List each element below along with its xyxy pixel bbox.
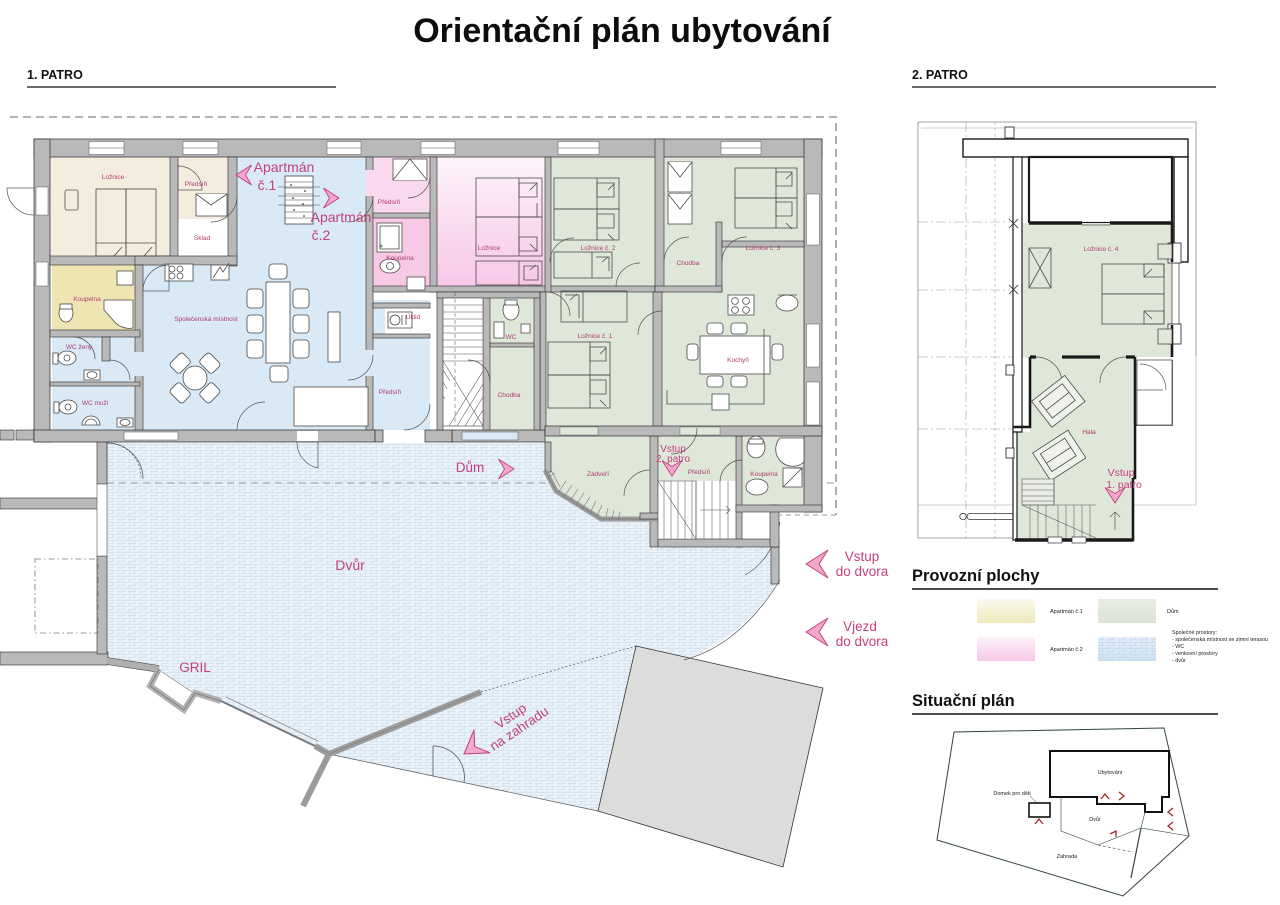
svg-text:Koupelna: Koupelna bbox=[386, 255, 414, 262]
svg-text:Apartmán: Apartmán bbox=[254, 159, 315, 175]
svg-text:Společenská místnost: Společenská místnost bbox=[174, 316, 238, 323]
svg-text:Společné prostory:: Společné prostory: bbox=[1172, 630, 1217, 636]
svg-text:Ubytování: Ubytování bbox=[1098, 770, 1123, 776]
svg-text:Kuchyň: Kuchyň bbox=[727, 357, 749, 364]
svg-text:č.1: č.1 bbox=[258, 177, 277, 193]
svg-text:Domek pro děti: Domek pro děti bbox=[993, 791, 1030, 797]
svg-text:Koupelna: Koupelna bbox=[750, 471, 778, 478]
svg-text:Ložnice: Ložnice bbox=[102, 174, 125, 181]
svg-text:Sklad: Sklad bbox=[194, 235, 211, 242]
svg-text:- společenská místnost se zimn: - společenská místnost se zimní terasou bbox=[1172, 637, 1268, 643]
svg-text:do dvora: do dvora bbox=[836, 634, 889, 649]
svg-text:do dvora: do dvora bbox=[836, 564, 889, 579]
svg-text:č.2: č.2 bbox=[312, 227, 331, 243]
svg-text:Dům: Dům bbox=[1167, 608, 1179, 615]
svg-text:Apartmán č.1: Apartmán č.1 bbox=[1050, 609, 1083, 615]
svg-text:Vstup: Vstup bbox=[845, 549, 880, 564]
svg-text:Ložnice: Ložnice bbox=[478, 245, 501, 252]
svg-text:2. PATRO: 2. PATRO bbox=[912, 68, 968, 82]
svg-text:Hala: Hala bbox=[1082, 429, 1096, 436]
svg-text:Vstup: Vstup bbox=[1108, 467, 1135, 479]
svg-text:Chodba: Chodba bbox=[498, 392, 521, 399]
svg-text:Vjezd: Vjezd bbox=[843, 619, 877, 634]
svg-text:Ložnice č. 4: Ložnice č. 4 bbox=[1084, 246, 1119, 253]
svg-text:Dvůr: Dvůr bbox=[335, 557, 365, 573]
svg-text:Zádveří: Zádveří bbox=[587, 471, 609, 478]
svg-text:WC ženy: WC ženy bbox=[66, 344, 93, 351]
svg-text:WC muži: WC muži bbox=[82, 400, 108, 407]
svg-text:Dvůr: Dvůr bbox=[1089, 816, 1101, 823]
svg-text:1. PATRO: 1. PATRO bbox=[27, 68, 83, 82]
svg-text:Zahrada: Zahrada bbox=[1057, 854, 1078, 860]
svg-text:Ložnice č. 3: Ložnice č. 3 bbox=[746, 245, 781, 252]
svg-text:GRIL: GRIL bbox=[179, 660, 211, 675]
svg-text:Úklid: Úklid bbox=[406, 312, 421, 321]
svg-text:Koupelna: Koupelna bbox=[73, 296, 101, 303]
svg-text:Předsíň: Předsíň bbox=[378, 199, 401, 206]
svg-text:Dům: Dům bbox=[456, 460, 485, 475]
svg-text:Předsíň: Předsíň bbox=[185, 181, 208, 188]
svg-text:Ložnice č. 2: Ložnice č. 2 bbox=[581, 245, 616, 252]
svg-text:- dvůr: - dvůr bbox=[1172, 657, 1186, 664]
svg-text:Chodba: Chodba bbox=[677, 260, 700, 267]
svg-text:- venkovní prostory: - venkovní prostory bbox=[1172, 651, 1218, 657]
svg-text:Předsíň: Předsíň bbox=[379, 389, 402, 396]
svg-text:2. patro: 2. patro bbox=[656, 454, 690, 465]
svg-text:Orientační plán ubytování: Orientační plán ubytování bbox=[413, 12, 832, 50]
svg-text:Provozní plochy: Provozní plochy bbox=[912, 567, 1040, 585]
svg-text:Apartmán č.2: Apartmán č.2 bbox=[1050, 647, 1083, 653]
svg-text:Předsíň: Předsíň bbox=[688, 469, 711, 476]
svg-text:- WC: - WC bbox=[1172, 644, 1184, 650]
svg-text:WC: WC bbox=[506, 334, 517, 341]
svg-text:Ložnice č. 1: Ložnice č. 1 bbox=[578, 333, 613, 340]
svg-text:Situační plán: Situační plán bbox=[912, 692, 1015, 710]
svg-text:Apartmán: Apartmán bbox=[311, 209, 372, 225]
